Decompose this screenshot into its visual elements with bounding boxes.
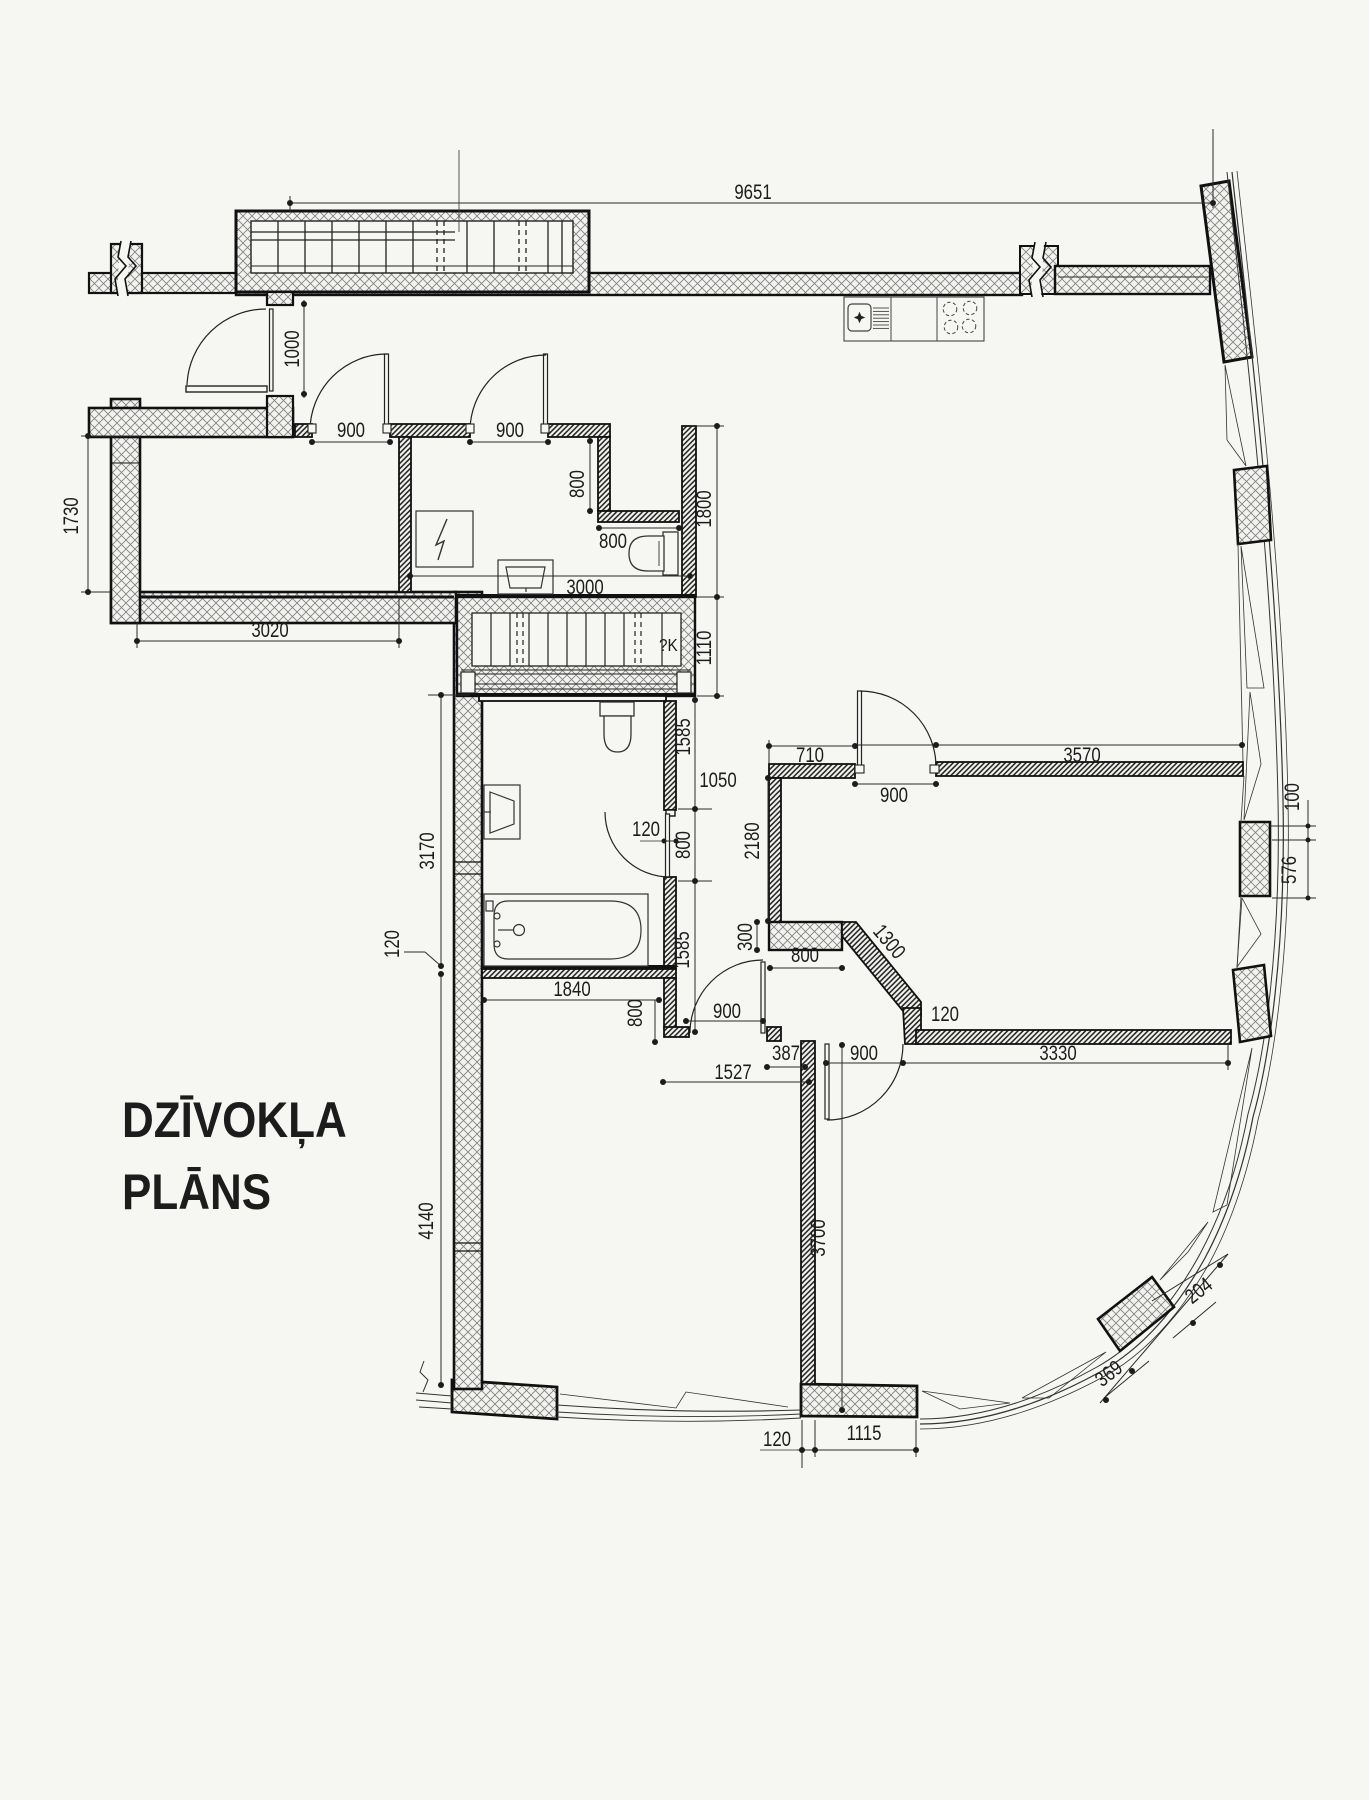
svg-text:900: 900	[337, 419, 365, 442]
svg-text:120: 120	[381, 930, 404, 958]
svg-text:1110: 1110	[693, 631, 716, 666]
svg-text:4140: 4140	[415, 1202, 438, 1239]
svg-text:3570: 3570	[1063, 744, 1100, 767]
svg-text:100: 100	[1281, 783, 1304, 811]
svg-text:800: 800	[791, 944, 819, 967]
svg-text:900: 900	[850, 1042, 878, 1065]
svg-text:710: 710	[796, 744, 824, 767]
svg-text:1585: 1585	[672, 718, 695, 755]
svg-text:3170: 3170	[416, 832, 439, 869]
svg-text:?K: ?K	[659, 635, 678, 655]
svg-text:1800: 1800	[693, 490, 716, 527]
svg-text:900: 900	[713, 1000, 741, 1023]
svg-text:1115: 1115	[847, 1422, 882, 1445]
svg-text:3000: 3000	[566, 576, 603, 599]
svg-text:1730: 1730	[60, 497, 83, 534]
svg-text:387: 387	[772, 1042, 800, 1065]
svg-text:120: 120	[632, 818, 660, 841]
svg-text:800: 800	[624, 999, 647, 1027]
svg-text:3020: 3020	[251, 619, 288, 642]
svg-text:300: 300	[734, 923, 757, 951]
svg-text:800: 800	[599, 530, 627, 553]
svg-text:576: 576	[1278, 856, 1301, 884]
svg-text:1840: 1840	[553, 978, 590, 1001]
svg-text:1050: 1050	[699, 769, 736, 792]
svg-text:800: 800	[672, 831, 695, 859]
svg-text:120: 120	[763, 1428, 791, 1451]
svg-text:1000: 1000	[281, 330, 304, 367]
svg-text:800: 800	[566, 470, 589, 498]
svg-text:3700: 3700	[807, 1219, 830, 1256]
svg-text:1585: 1585	[671, 931, 694, 968]
svg-text:DZĪVOKĻA: DZĪVOKĻA	[122, 1091, 347, 1148]
svg-text:2180: 2180	[741, 822, 764, 859]
svg-text:900: 900	[496, 419, 524, 442]
svg-text:120: 120	[931, 1003, 959, 1026]
svg-text:900: 900	[880, 784, 908, 807]
svg-text:9651: 9651	[734, 181, 771, 204]
svg-text:3330: 3330	[1039, 1042, 1076, 1065]
svg-text:1527: 1527	[714, 1061, 751, 1084]
svg-text:PLĀNS: PLĀNS	[122, 1163, 271, 1219]
